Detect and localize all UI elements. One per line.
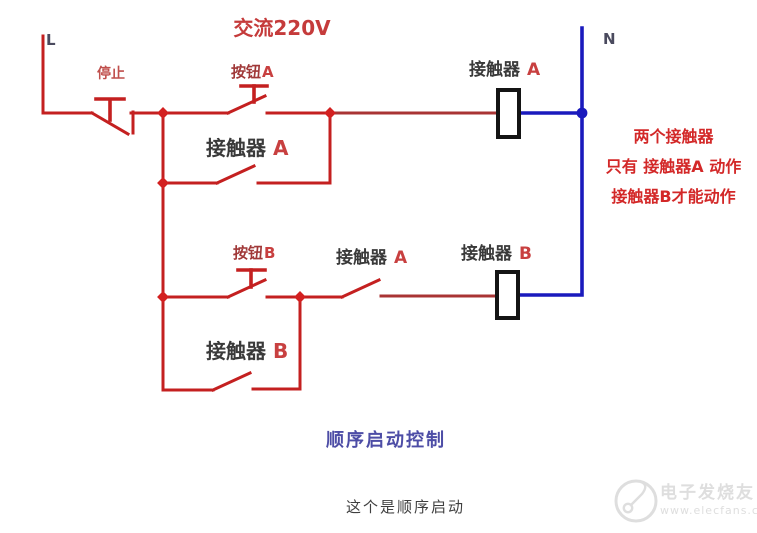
blue-junction-dot bbox=[577, 108, 588, 119]
interlock-contact-a-symbol bbox=[342, 280, 379, 297]
coil-b-label: 接触器B bbox=[461, 245, 532, 265]
watermark-url: www.elecfans.com bbox=[660, 505, 757, 518]
button-a-symbol bbox=[228, 86, 267, 113]
button-b-symbol bbox=[228, 270, 265, 297]
elecfans-logo-icon bbox=[616, 481, 656, 521]
button-b-label: 按钮B bbox=[233, 245, 275, 262]
junction-dot bbox=[324, 107, 336, 119]
coil-a-symbol bbox=[498, 90, 519, 137]
coil-a-label: 接触器A bbox=[469, 61, 540, 81]
stop-button-label: 停止 bbox=[97, 66, 125, 82]
voltage-label: 交流220V bbox=[226, 17, 338, 40]
stop-button-symbol bbox=[92, 99, 133, 134]
holding-contact-b-label: 接触器B bbox=[206, 340, 288, 363]
sequence-start-circuit-diagram: L 交流220V N 停止 按钮A 接触器A 接触器A 两个接触器 只有 接触器… bbox=[0, 0, 757, 533]
junction-dot bbox=[157, 107, 169, 119]
junction-dot bbox=[157, 177, 169, 189]
annotation-line-1: 两个接触器 bbox=[590, 122, 757, 152]
junction-dot bbox=[294, 291, 306, 303]
coil-b-symbol bbox=[497, 272, 518, 318]
interlock-contact-a-label: 接触器A bbox=[336, 249, 407, 269]
button-a-label: 按钮A bbox=[231, 64, 274, 81]
annotation-line-3: 接触器B才能动作 bbox=[590, 182, 757, 212]
junction-dot bbox=[157, 291, 169, 303]
sequence-annotation: 两个接触器 只有 接触器A 动作 接触器B才能动作 bbox=[590, 122, 757, 212]
diagram-caption: 顺序启动控制 bbox=[326, 431, 446, 452]
terminal-n-label: N bbox=[603, 31, 616, 48]
page-caption: 这个是顺序启动 bbox=[346, 499, 465, 516]
holding-contact-a-label: 接触器A bbox=[206, 137, 288, 160]
annotation-line-2: 只有 接触器A 动作 bbox=[590, 152, 757, 182]
terminal-l-label: L bbox=[46, 32, 56, 49]
watermark-brand: 电子发烧友 bbox=[660, 484, 755, 504]
